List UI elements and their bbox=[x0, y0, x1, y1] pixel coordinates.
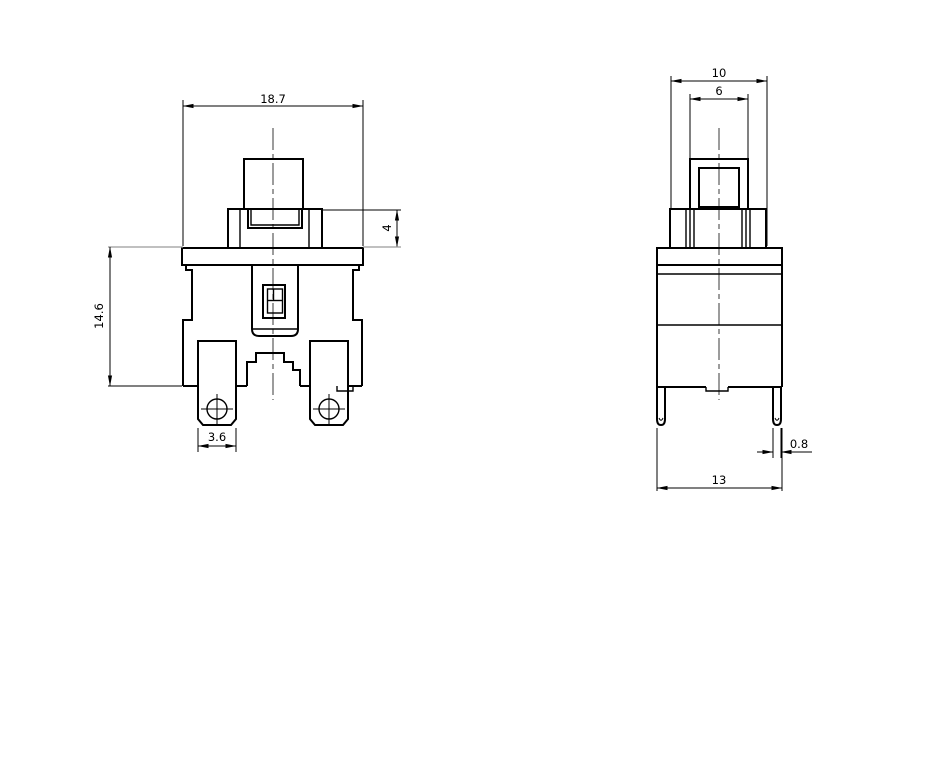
dim-front-bezel-height: 4 bbox=[323, 210, 401, 247]
side-bottom-tab bbox=[706, 387, 728, 391]
dim-side-pin-width: 0.8 bbox=[757, 428, 812, 458]
front-view: 18.7 4 14.6 3.6 bbox=[92, 92, 401, 452]
front-body-right-profile bbox=[353, 265, 362, 386]
front-terminal-left bbox=[198, 341, 236, 425]
side-leg-right bbox=[773, 387, 781, 425]
side-bezel bbox=[670, 209, 766, 248]
front-latch-channel bbox=[252, 265, 298, 336]
front-terminal-right bbox=[310, 341, 348, 425]
dim-front-terminal-width-label: 3.6 bbox=[208, 430, 226, 444]
dim-side-pin-width-label: 0.8 bbox=[790, 437, 808, 451]
front-terminal-left-crosshair bbox=[201, 394, 233, 425]
side-view: 10 6 0.8 13 bbox=[657, 66, 812, 491]
side-bezel-outline bbox=[670, 209, 766, 248]
side-leg-right-outline bbox=[773, 387, 781, 425]
drawing-canvas: 18.7 4 14.6 3.6 bbox=[0, 0, 944, 758]
front-terminal-right-crosshair bbox=[313, 394, 345, 425]
dim-side-bezel-width-label: 10 bbox=[712, 66, 727, 80]
side-leg-left-tip-arc bbox=[659, 418, 663, 420]
dim-side-button-width-label: 6 bbox=[715, 84, 722, 98]
side-leg-right-tip-arc bbox=[775, 418, 779, 420]
dim-side-width-label: 13 bbox=[712, 473, 727, 487]
side-leg-left-outline bbox=[657, 387, 665, 425]
side-bezel-ribs bbox=[686, 209, 750, 248]
front-bezel bbox=[228, 209, 322, 248]
dim-front-terminal-width: 3.6 bbox=[198, 428, 236, 452]
dim-side-pin-width-ext bbox=[773, 428, 781, 458]
dim-side-width: 13 bbox=[657, 428, 782, 491]
front-bezel-window-inner bbox=[251, 209, 299, 225]
engineering-drawing-page: 18.7 4 14.6 3.6 bbox=[0, 0, 944, 758]
side-leg-left bbox=[657, 387, 665, 425]
dim-front-width-label: 18.7 bbox=[260, 92, 286, 106]
front-body-left-profile bbox=[183, 265, 192, 386]
dim-front-height-label: 14.6 bbox=[92, 303, 106, 329]
dim-front-bezel-height-label: 4 bbox=[380, 224, 394, 231]
